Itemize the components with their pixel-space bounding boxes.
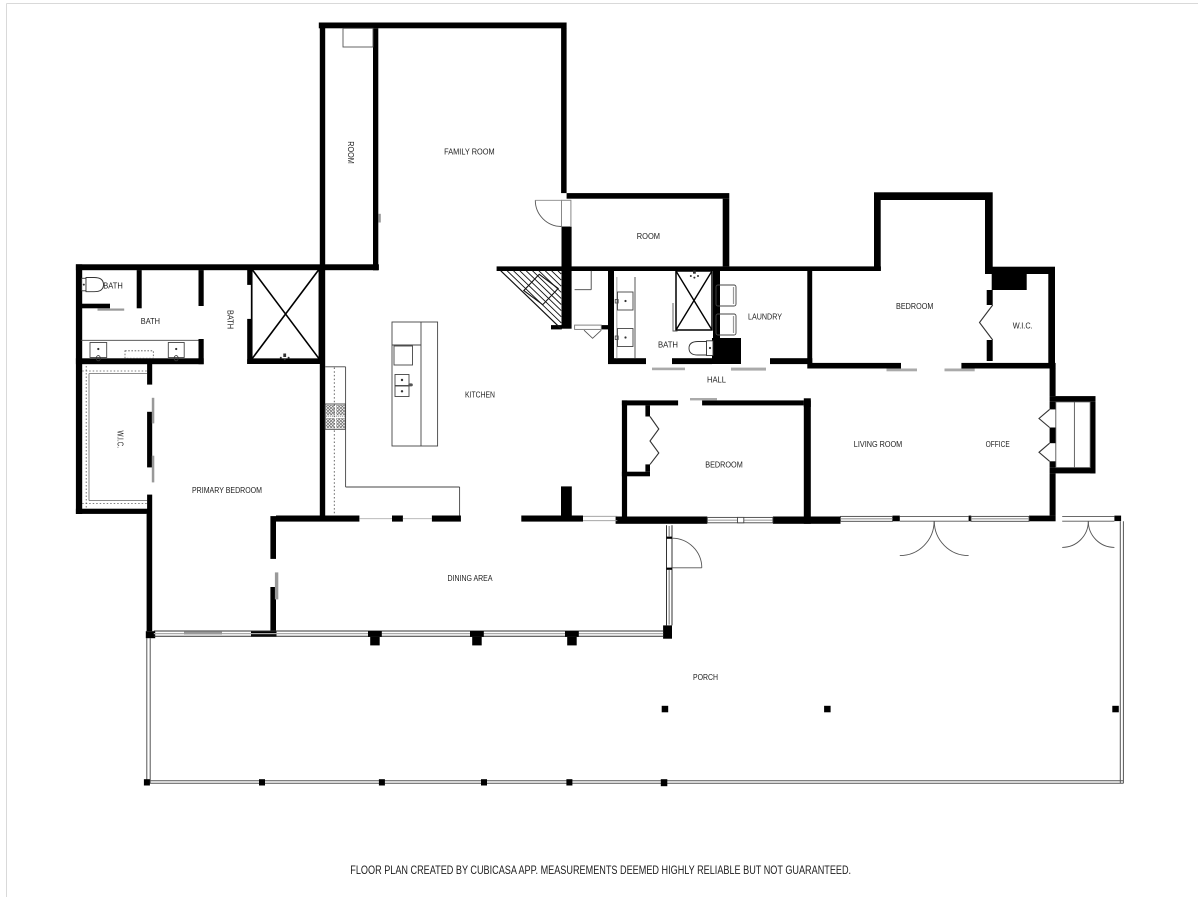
svg-text:BEDROOM: BEDROOM (705, 460, 743, 470)
svg-text:BATH: BATH (658, 339, 678, 349)
svg-text:W.I.C.: W.I.C. (1013, 320, 1033, 330)
svg-text:KITCHEN: KITCHEN (465, 389, 495, 399)
svg-text:LIVING ROOM: LIVING ROOM (854, 439, 902, 449)
svg-text:OFFICE: OFFICE (986, 439, 1010, 449)
svg-text:ROOM: ROOM (637, 231, 660, 241)
svg-text:ROOM: ROOM (346, 141, 356, 164)
svg-text:PRIMARY BEDROOM: PRIMARY BEDROOM (192, 485, 262, 495)
svg-text:BEDROOM: BEDROOM (896, 301, 933, 311)
svg-text:FAMILY ROOM: FAMILY ROOM (444, 147, 495, 157)
svg-text:FLOOR PLAN CREATED BY CUBICASA: FLOOR PLAN CREATED BY CUBICASA APP. MEAS… (350, 864, 851, 877)
svg-text:BATH: BATH (225, 310, 235, 329)
svg-text:LAUNDRY: LAUNDRY (748, 311, 782, 321)
svg-text:PORCH: PORCH (693, 672, 718, 682)
svg-text:BATH: BATH (103, 281, 123, 291)
svg-text:DINING AREA: DINING AREA (448, 573, 493, 583)
svg-text:HALL: HALL (707, 374, 726, 384)
svg-text:W.I.C.: W.I.C. (115, 431, 125, 449)
svg-text:BATH: BATH (141, 316, 160, 326)
